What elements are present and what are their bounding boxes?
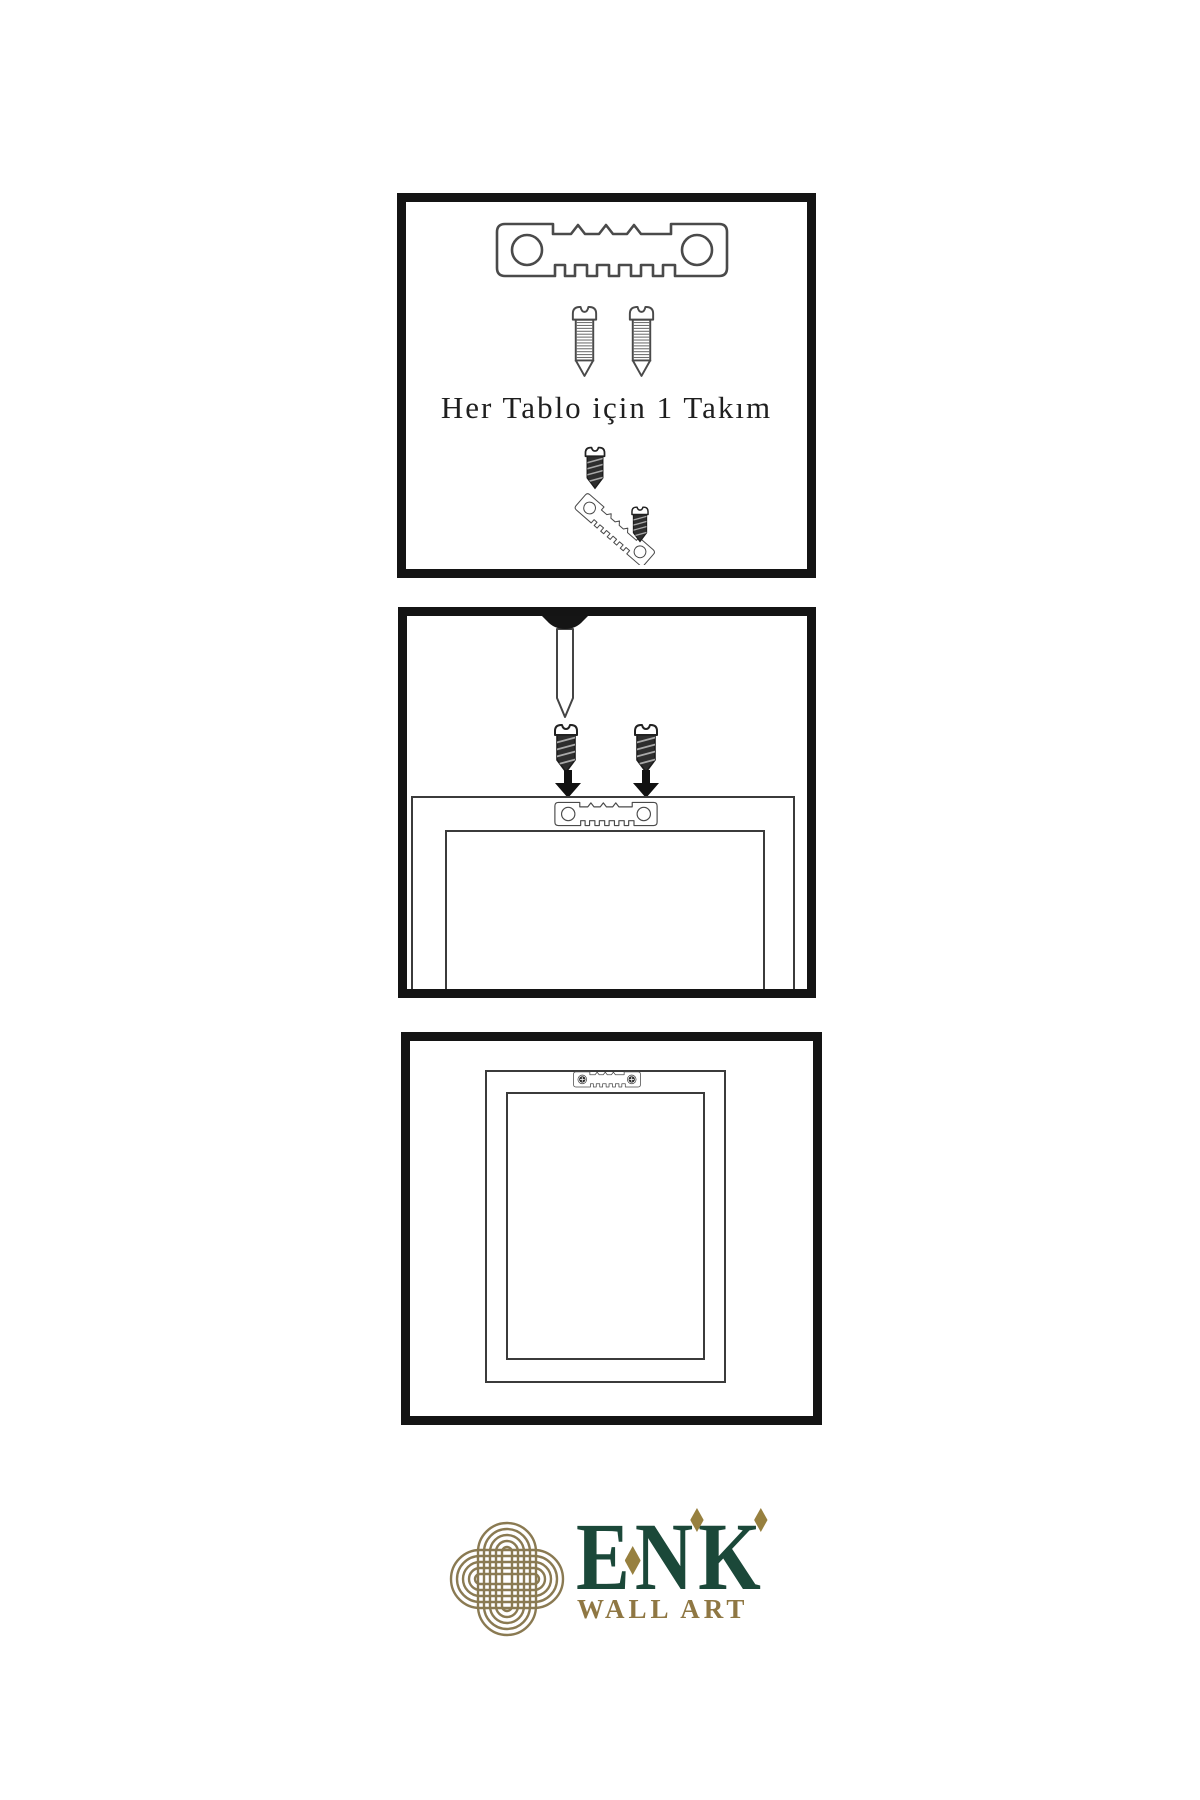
instruction-panel-result	[401, 1032, 822, 1425]
brand-letter: E	[576, 1514, 635, 1600]
arrow-down-icon	[633, 770, 659, 798]
instruction-panel-mounting	[398, 607, 816, 998]
hanger-with-screws-icon	[573, 445, 677, 565]
knot-logo-icon	[447, 1512, 567, 1646]
screw-dark-icon	[551, 722, 581, 774]
brand-wordmark: ENK	[576, 1514, 794, 1600]
frame-back-inner-outline	[445, 830, 765, 989]
instruction-sheet: Her Tablo için 1 Takım	[0, 0, 1200, 1800]
screw-dark-icon	[631, 722, 661, 774]
screws-pair-icon	[568, 302, 660, 380]
step-caption: Her Tablo için 1 Takım	[406, 390, 807, 426]
sawtooth-hanger-icon	[495, 222, 729, 278]
mounted-hanger-icon	[573, 1071, 641, 1089]
nail-icon	[542, 616, 588, 720]
instruction-panel-hardware: Her Tablo için 1 Takım	[397, 193, 816, 578]
arrow-down-icon	[555, 770, 581, 798]
brand-letter: N	[635, 1514, 698, 1600]
brand-letter: K	[698, 1514, 766, 1600]
brand-subtitle: WALL ART	[577, 1594, 748, 1625]
sawtooth-hanger-icon	[554, 801, 658, 827]
frame-back-inner-outline	[506, 1092, 705, 1360]
